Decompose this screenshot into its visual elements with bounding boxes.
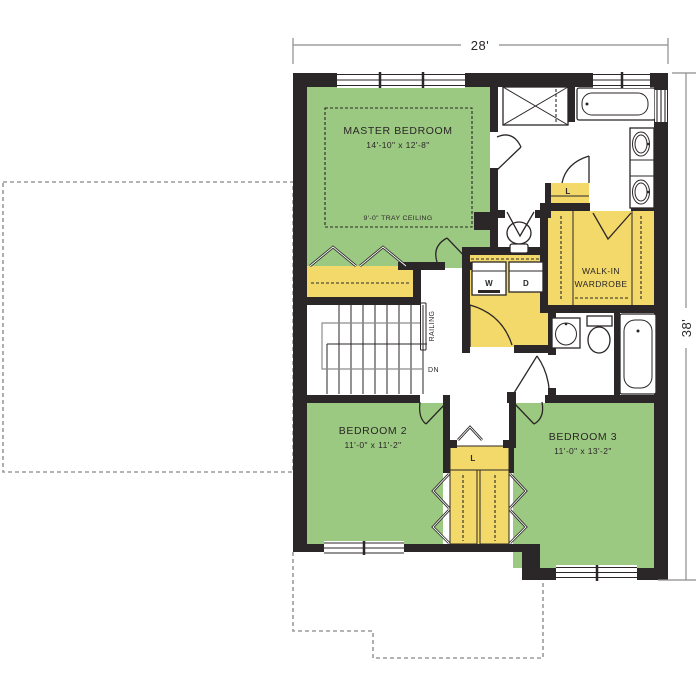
- stair-direction-line: [322, 323, 424, 369]
- dryer-label: D: [523, 279, 529, 288]
- staircase: [297, 303, 427, 394]
- door-hall-bath: [514, 356, 549, 393]
- bedroom-2-size: 11'-0" x 11'-2": [344, 440, 401, 450]
- dimension-width-label: 28': [471, 38, 489, 53]
- washer-label: W: [485, 279, 493, 288]
- master-bedroom-size: 14'-10" x 12'-8": [366, 140, 429, 150]
- shower: [503, 87, 568, 125]
- wardrobe-name-line1: WALK-IN: [582, 266, 620, 276]
- down-label: DN: [428, 367, 439, 374]
- window-bedroom-2: [324, 541, 404, 555]
- bedroom-2-name: BEDROOM 2: [339, 425, 407, 437]
- bedroom-3-floor: [513, 403, 654, 568]
- sink-hall-bath: [552, 318, 580, 348]
- bedroom-3-name: BEDROOM 3: [549, 431, 617, 443]
- bathtub-hall-bath: [620, 314, 656, 394]
- master-bedroom-floor: [307, 87, 490, 268]
- dimension-width: 28': [293, 37, 668, 64]
- bathtub-master: [577, 88, 655, 120]
- floor-plan-drawing: 28' 38' MASTER BEDROOM 14'-10" x 12'-8" …: [0, 0, 700, 700]
- bedroom-3-size: 11'-0" x 13'-2": [554, 446, 612, 456]
- window-bath-top: [593, 72, 650, 88]
- window-bedroom-3: [556, 565, 637, 581]
- linen-hall-floor: [450, 446, 509, 470]
- master-closet-floor: [307, 266, 413, 297]
- roof-outline-bottom: [293, 552, 543, 658]
- walk-in-wardrobe-floor: [548, 211, 654, 305]
- wardrobe-name-line2: WARDROBE: [575, 279, 628, 289]
- stair-treads: [327, 305, 427, 394]
- dimension-height-label: 38': [679, 319, 694, 337]
- linen-hall-label: L: [470, 454, 475, 463]
- door-linen-bath: [562, 156, 589, 183]
- master-bedroom-name: MASTER BEDROOM: [343, 125, 452, 137]
- bifold-linen-hall: [458, 427, 482, 440]
- window-master-top: [337, 72, 465, 88]
- double-vanity: [630, 128, 654, 208]
- roof-outline-left: [3, 182, 293, 472]
- door-master-bath: [497, 135, 521, 170]
- floor-plan-canvas: 28' 38' MASTER BEDROOM 14'-10" x 12'-8" …: [0, 0, 700, 700]
- railing-label: RAILING: [429, 311, 436, 342]
- toilet-hall-bath: [587, 316, 612, 353]
- master-bedroom-ceiling-note: 9'-0" TRAY CEILING: [363, 215, 432, 222]
- linen-bath-label: L: [565, 187, 570, 196]
- window-bath-right: [655, 90, 667, 122]
- toilet-master: [507, 222, 531, 253]
